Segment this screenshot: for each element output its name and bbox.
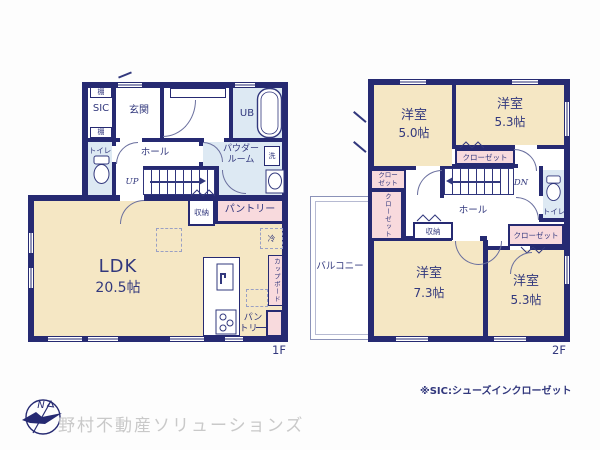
- f1-stairs-arrow-line: [150, 181, 200, 183]
- kitchen-sink-icon: [214, 262, 236, 294]
- f1-floor-label: 1F: [266, 344, 292, 358]
- f2-window-s2: [494, 336, 526, 342]
- f1-gap-powder: [204, 138, 224, 142]
- f1-door-s4: [225, 336, 243, 342]
- f1-window-s1: [48, 336, 82, 342]
- f1-window-w2: [28, 268, 34, 288]
- f1-stairs-arrowhead: [199, 177, 206, 185]
- f1-ldk-size: 20.5帖: [78, 280, 158, 297]
- f2-window-n1: [400, 79, 426, 85]
- f1-entry-door: [118, 82, 142, 88]
- toilet-icon-2f: [545, 175, 562, 202]
- f2-bedroom-se-label: 洋室: [501, 274, 551, 290]
- f2-bedroom-sw-size: 7.3帖: [406, 286, 452, 300]
- f1-window-s3: [170, 336, 204, 342]
- f2-window-e1: [564, 102, 570, 136]
- f1-entry-step: [170, 88, 226, 98]
- fold-door-mark-1: [459, 141, 485, 149]
- f1-cupboard-box: カップボード: [268, 255, 283, 306]
- f2-closet-e-box: クローゼット: [508, 224, 564, 246]
- f1-window-w1: [28, 233, 34, 253]
- f2-gap-nw: [416, 166, 440, 170]
- bathtub-icon: [256, 87, 283, 139]
- f1-shelf-bottom-label: 棚: [98, 128, 105, 136]
- f1-sic-label: SIC: [88, 103, 114, 115]
- f1-window-s2: [88, 336, 118, 342]
- f2-closet-w-lower-label: クローゼット: [383, 193, 391, 238]
- f2-window-n2: [512, 79, 538, 85]
- f2-closet-mid-box: クローゼット: [455, 149, 515, 165]
- f1-door-leaf-mark: [118, 71, 132, 78]
- f2-window-e2: [564, 256, 570, 284]
- f2-bedroom-ne-label: 洋室: [485, 97, 535, 113]
- f2-bedroom-nw-size: 5.0帖: [391, 126, 437, 140]
- f1-pantry2-line: [256, 327, 266, 328]
- f2-closet-w-lower-box: クローゼット: [370, 190, 403, 240]
- f2-stairs-arrow-line: [452, 181, 500, 183]
- f1-toilet-label: トイレ: [86, 146, 114, 155]
- f1-hall-label: ホール: [133, 147, 177, 158]
- f2-bedroom-sw-label: 洋室: [404, 266, 454, 282]
- sic-note: ※SIC:シューズインクローゼット: [420, 386, 590, 398]
- f1-shelf-top-label: 棚: [98, 88, 105, 96]
- f1-wall-ub: [229, 88, 233, 138]
- f1-shelf-bottom-box: 棚: [90, 127, 112, 138]
- f1-wall-pantry-btm: [215, 221, 285, 224]
- f2-toilet-label: トイレ: [542, 207, 566, 216]
- f1-dashed-box-1: [156, 228, 182, 252]
- f2-closet-mid-label: クローゼット: [463, 153, 508, 162]
- f2-wall-nw-ne: [452, 85, 456, 149]
- f1-genkan-label: 玄関: [118, 105, 160, 117]
- compass-n-letter: N: [37, 400, 45, 411]
- f1-ldk-label: LDK: [78, 256, 158, 278]
- f2-closet-e-label: クローゼット: [514, 231, 559, 240]
- f1-gap-hall: [120, 138, 142, 142]
- f2-bedroom-ne-size: 5.3帖: [487, 115, 533, 129]
- f1-powder-label: パウダー ルーム: [218, 144, 264, 166]
- f1-shelf-top-box: 棚: [90, 87, 112, 98]
- f1-wall-ldk-top: [28, 195, 288, 201]
- f2-window-s1: [396, 336, 428, 342]
- f2-window-hatch-1: [353, 111, 366, 122]
- f2-hall-label: ホール: [451, 205, 495, 216]
- f1-pantry2-box: [266, 310, 283, 337]
- f1-dashed-box-2: [246, 289, 268, 307]
- f2-window-hatch-2: [353, 141, 366, 152]
- f1-fridge-label: 冷: [268, 234, 276, 243]
- f1-storage-box: 収納: [188, 199, 215, 226]
- toilet-icon-1f: [92, 155, 111, 185]
- f1-cupboard-label: カップボード: [272, 258, 280, 303]
- floorplan-canvas: 棚 棚 収納 洗 カップボード 冷: [0, 0, 600, 450]
- f1-ub-label: UB: [234, 108, 260, 120]
- f2-wall-top: [368, 79, 570, 85]
- f2-bedroom-se-size: 5.3帖: [503, 293, 549, 307]
- f1-up-label: UP: [122, 177, 142, 187]
- stove-icon: [214, 308, 238, 336]
- f2-storage-box: 収納: [413, 222, 453, 240]
- f1-laundry-box: 洗: [264, 146, 280, 166]
- f1-window-ub: [235, 82, 255, 88]
- f2-floor-label: 2F: [546, 344, 572, 358]
- f2-stairs-arrowhead: [446, 177, 453, 185]
- f2-closet-w-upper-box: クロー ゼット: [370, 169, 406, 190]
- f2-balcony-label: バルコニー: [312, 261, 368, 272]
- f1-pantry2-label: パン トリー: [238, 313, 268, 335]
- f1-fridge-box: 冷: [260, 228, 283, 249]
- fold-door-mark-4: [190, 189, 216, 197]
- f1-laundry-label: 洗: [269, 152, 276, 160]
- f2-wall-toilet-bottom: [539, 218, 570, 222]
- f2-bedroom-nw-label: 洋室: [389, 108, 439, 124]
- washbasin-icon: [265, 169, 285, 194]
- company-name: 野村不動産ソリューションズ: [58, 416, 318, 436]
- f2-closet-w-upper-label: クロー ゼット: [378, 172, 398, 188]
- f1-storage-label: 収納: [194, 208, 209, 217]
- f1-pantry-label: パントリー: [218, 204, 282, 216]
- f2-storage-label: 収納: [426, 227, 441, 236]
- fold-door-mark-2: [416, 214, 442, 222]
- f2-dn-label: DN: [511, 178, 531, 188]
